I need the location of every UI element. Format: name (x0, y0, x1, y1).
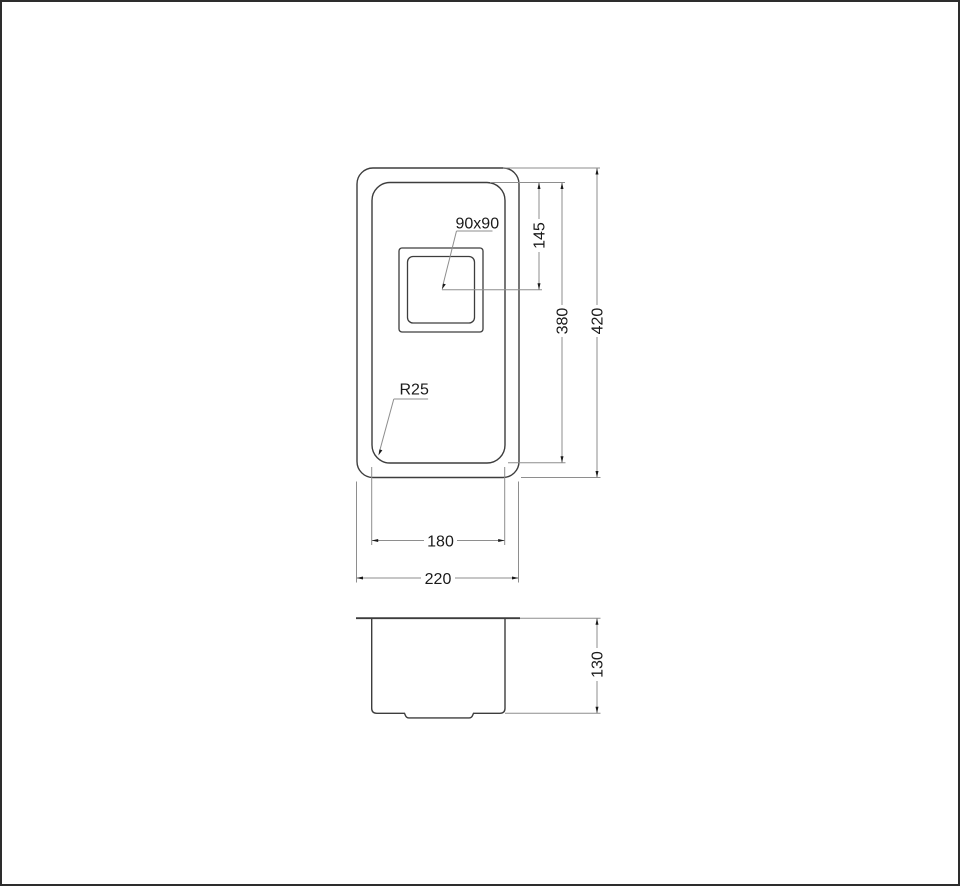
svg-text:380: 380 (555, 308, 572, 335)
svg-text:R25: R25 (400, 382, 429, 399)
svg-text:420: 420 (590, 308, 607, 335)
svg-text:220: 220 (425, 571, 452, 588)
svg-text:180: 180 (427, 534, 454, 551)
svg-text:130: 130 (590, 651, 607, 678)
svg-text:90x90: 90x90 (456, 216, 500, 233)
svg-text:145: 145 (532, 222, 549, 249)
